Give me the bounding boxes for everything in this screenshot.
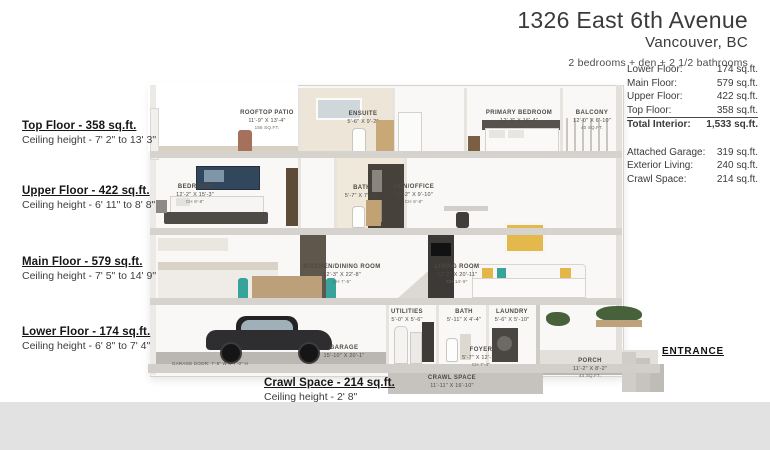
room-label-kitchen-dining: KITCHEN/DINING ROOM 12'-3" X 22'-8" CH 7… <box>303 264 380 285</box>
room-label-living-room: LIVING ROOM 12'-2" X 20'-11" CH 14'-9" <box>435 264 480 285</box>
row-value: 1,533 sq.ft. <box>706 119 758 131</box>
table-row-total: Total Interior:1,533 sq.ft. <box>627 118 758 132</box>
room-label-utilities: UTILITIES 5'-0" X 5'-6" <box>391 309 423 324</box>
living-art <box>504 222 546 254</box>
room-label-foyer: FOYER 5'-7" X 12'-10" CH 7'-4" <box>462 347 500 368</box>
row-label: Main Floor: <box>627 78 677 90</box>
table-row: Lower Floor:174 sq.ft. <box>627 63 758 77</box>
footer-bar: ➤ Floor plan measurements, dimensions, s… <box>0 402 770 450</box>
floor-title: Top Floor - 358 sq.ft. <box>22 120 156 132</box>
pillow <box>508 130 524 138</box>
room-label-den-office: DEN/OFFICE 12'-2" X 9'-10" CH 8'-8" <box>394 184 434 205</box>
floor-ceiling: Ceiling height - 7' 5" to 14' 9" <box>22 270 156 282</box>
row-value: 422 sq.ft. <box>717 91 758 103</box>
entrance-label: ENTRANCE <box>662 346 724 357</box>
pillow-teal <box>497 268 506 278</box>
office-chair <box>456 212 469 228</box>
bed-platform <box>164 212 268 224</box>
tv-screen <box>431 243 451 256</box>
white-dresser <box>398 112 422 154</box>
label-crawl-space: Crawl Space - 214 sq.ft. Ceiling height … <box>264 377 395 403</box>
nightstand <box>156 200 167 213</box>
room-label-crawl-space: CRAWL SPACE 11'-11" X 16'-10" <box>428 375 476 390</box>
desk <box>444 206 488 211</box>
row-label: Attached Garage: <box>627 147 705 159</box>
row-value: 240 sq.ft. <box>717 160 758 172</box>
room-label-balcony: BALCONY 12'-0" X 6'-10" 40 SQ.FT. <box>573 110 611 131</box>
row-label: Top Floor: <box>627 105 671 117</box>
planter-box <box>596 320 642 327</box>
row-value: 579 sq.ft. <box>717 78 758 90</box>
powder-toilet <box>446 338 458 362</box>
pillow-yellow <box>482 268 493 278</box>
floor-title: Main Floor - 579 sq.ft. <box>22 256 156 268</box>
room-label-laundry: LAUNDRY 5'-6" X 5'-10" <box>495 309 530 324</box>
room-label-ensuite: ENSUITE 5'-6" X 9'-2" <box>347 111 378 126</box>
floor-title: Upper Floor - 422 sq.ft. <box>22 185 155 197</box>
dining-chair <box>238 278 248 298</box>
bath-vanity <box>366 200 381 226</box>
label-top-floor: Top Floor - 358 sq.ft. Ceiling height - … <box>22 120 156 146</box>
table-row: Attached Garage:319 sq.ft. <box>627 146 758 160</box>
ensuite-toilet <box>352 128 366 153</box>
page-title: 1326 East 6th Avenue <box>517 8 748 32</box>
row-label: Lower Floor: <box>627 64 683 76</box>
label-main-floor: Main Floor - 579 sq.ft. Ceiling height -… <box>22 256 156 282</box>
room-label-porch: PORCH 11'-2" X 8'-2" 44 SQ.FT. <box>573 358 607 379</box>
wood-cabinet <box>376 120 394 152</box>
slab-upper-main <box>150 228 622 235</box>
wall-art-detail <box>204 170 224 182</box>
floor-title: Lower Floor - 174 sq.ft. <box>22 326 150 338</box>
row-value: 319 sq.ft. <box>717 147 758 159</box>
page-subtitle-city: Vancouver, BC <box>517 34 748 51</box>
floor-ceiling: Ceiling height - 6' 8" to 7' 4" <box>22 340 150 352</box>
area-summary-table: Lower Floor:174 sq.ft. Main Floor:579 sq… <box>627 63 758 186</box>
table-row: Crawl Space:214 sq.ft. <box>627 173 758 187</box>
table-row: Main Floor:579 sq.ft. <box>627 77 758 91</box>
nightstand <box>468 136 480 151</box>
room-label-bedroom: BEDROOM 12'-2" X 15'-3" CH 8'-8" <box>176 184 214 205</box>
utility-unit <box>410 332 422 364</box>
water-heater <box>394 326 408 364</box>
row-label: Upper Floor: <box>627 91 683 103</box>
header: 1326 East 6th Avenue Vancouver, BC 2 bed… <box>517 8 748 69</box>
room-label-rooftop-patio: ROOFTOP PATIO 11'-9" X 13'-4" 156 SQ.FT. <box>240 110 294 131</box>
bath-toilet <box>352 206 365 228</box>
table-row: Exterior Living:240 sq.ft. <box>627 159 758 173</box>
table-row: Upper Floor:422 sq.ft. <box>627 90 758 104</box>
row-value: 214 sq.ft. <box>717 174 758 186</box>
pillow <box>489 130 505 138</box>
table-row: Top Floor:358 sq.ft. <box>627 104 758 119</box>
row-value: 174 sq.ft. <box>717 64 758 76</box>
floor-ceiling: Ceiling height - 7' 2" to 13' 3" <box>22 134 156 146</box>
room-label-bath-upper: BATH 5'-7" X 7'-10" <box>345 185 380 200</box>
garage-door-note: GARAGE DOOR: 7'-8" W X 7'-0" H <box>172 361 248 366</box>
floor-title: Crawl Space - 214 sq.ft. <box>264 377 395 389</box>
label-lower-floor: Lower Floor - 174 sq.ft. Ceiling height … <box>22 326 150 352</box>
room-label-primary-bedroom: PRIMARY BEDROOM 12'-3" X 16'-4" <box>486 110 552 125</box>
row-label: Exterior Living: <box>627 160 693 172</box>
row-label: Total Interior: <box>627 119 691 131</box>
utility-shelf <box>422 322 434 362</box>
porch-plant <box>546 312 570 326</box>
car-wheel <box>298 342 320 364</box>
row-value: 358 sq.ft. <box>717 105 758 117</box>
slab-top-upper <box>150 151 622 158</box>
room-label-garage: GARAGE 15'-10" X 20'-1" <box>323 345 364 360</box>
upper-cabinets <box>158 238 228 251</box>
patio-chair <box>238 130 252 152</box>
room-label-bath-lower: BATH 5'-11" X 4'-4" <box>447 309 481 324</box>
label-upper-floor: Upper Floor - 422 sq.ft. Ceiling height … <box>22 185 155 211</box>
sofa-seat <box>472 278 586 298</box>
floor-ceiling: Ceiling height - 6' 11" to 8' 8" <box>22 199 155 211</box>
pillow-yellow <box>560 268 571 278</box>
slab-main-lower <box>150 298 622 305</box>
bedroom-door <box>286 168 298 226</box>
row-label: Crawl Space: <box>627 174 686 186</box>
floor-plan-sheet: 1326 East 6th Avenue Vancouver, BC 2 bed… <box>0 0 770 450</box>
